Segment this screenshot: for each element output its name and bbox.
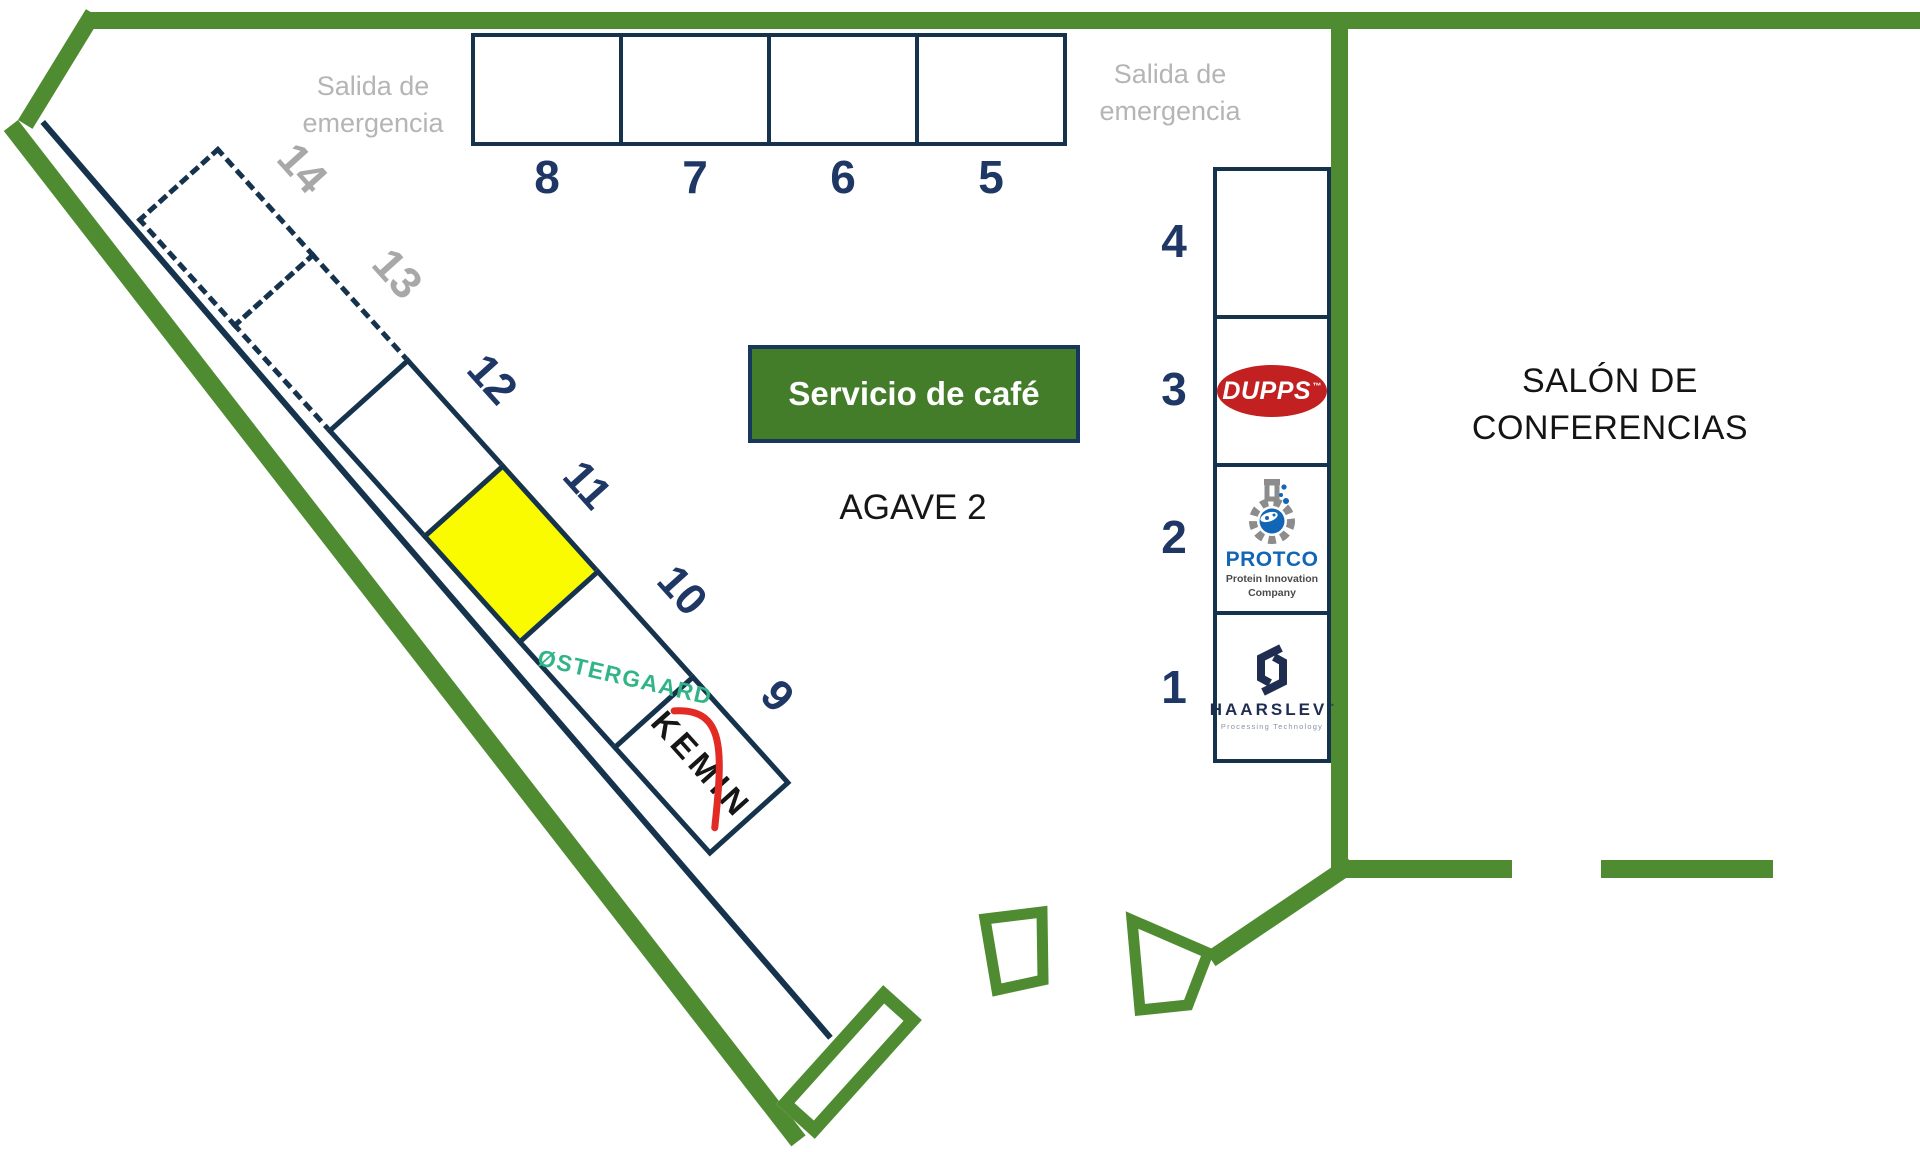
- haarslev-tagline: Processing Technology: [1221, 722, 1323, 731]
- wall-bottom-segment: [1601, 860, 1773, 878]
- protco-logo: PROTCO Protein Innovation Company: [1226, 479, 1319, 600]
- booth-1-number: 1: [1148, 660, 1200, 714]
- booth-6: [767, 33, 919, 146]
- booth-7: [619, 33, 771, 146]
- booth-8: [471, 33, 623, 146]
- diagonal-booth-strip: KEMIN 14 13 12 11 10 9: [136, 146, 820, 888]
- booth-8-number: 8: [471, 150, 623, 204]
- exit-right-line1: Salida de: [1050, 56, 1290, 93]
- booth-3: DUPPS™: [1213, 315, 1331, 467]
- floor-plan: Salida de emergencia Salida de emergenci…: [0, 0, 1920, 1152]
- booth-2-number: 2: [1148, 510, 1200, 564]
- conference-room-label: SALÓN DE CONFERENCIAS: [1430, 358, 1790, 452]
- emergency-exit-label-right: Salida de emergencia: [1050, 56, 1290, 130]
- wall-top: [84, 12, 1920, 29]
- haarslev-logo: HAARSLEV™ Processing Technology: [1210, 644, 1335, 731]
- hall-name-label: AGAVE 2: [813, 488, 1013, 528]
- haarslev-logo-text: HAARSLEV™: [1210, 700, 1335, 720]
- booth-4: [1213, 167, 1331, 319]
- haarslev-hexagon-icon: [1249, 644, 1295, 696]
- exit-right-line2: emergencia: [1050, 93, 1290, 130]
- inner-wall-line: [40, 120, 832, 1040]
- coffee-service-label: Servicio de café: [788, 375, 1039, 413]
- protco-tagline: Protein Innovation Company: [1226, 572, 1318, 600]
- booth-5: [915, 33, 1067, 146]
- coffee-service-box: Servicio de café: [748, 345, 1080, 443]
- haarslev-trademark: ™: [1327, 703, 1334, 710]
- exit-left-line1: Salida de: [253, 68, 493, 105]
- door-swing-marks: [960, 898, 1240, 1028]
- booth-6-number: 6: [767, 150, 919, 204]
- wall-bottom-horizontal: [1331, 860, 1512, 878]
- door-leaf: [776, 985, 922, 1139]
- wall-right-vertical: [1331, 12, 1348, 870]
- booth-7-number: 7: [619, 150, 771, 204]
- booth-5-number: 5: [915, 150, 1067, 204]
- wall-top-left-angle: [18, 9, 100, 129]
- booth-3-number: 3: [1148, 362, 1200, 416]
- booth-2: PROTCO Protein Innovation Company: [1213, 463, 1331, 615]
- dupps-logo-text: DUPPS™: [1222, 377, 1321, 406]
- dupps-trademark: ™: [1312, 381, 1322, 391]
- protco-flask-gear-icon: [1245, 479, 1299, 545]
- dupps-logo: DUPPS™: [1217, 365, 1327, 417]
- protco-logo-text: PROTCO: [1226, 548, 1319, 572]
- booth-4-number: 4: [1148, 214, 1200, 268]
- booth-1: HAARSLEV™ Processing Technology: [1213, 611, 1331, 763]
